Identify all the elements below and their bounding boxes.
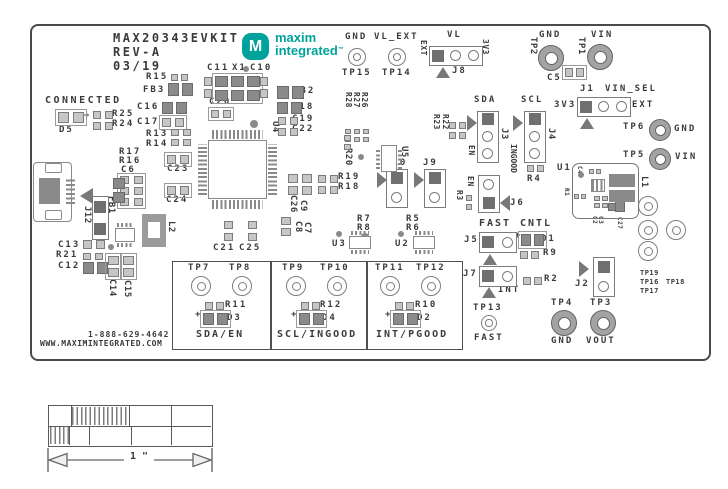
jumper-j2 (593, 257, 615, 297)
label-j6: J6 (510, 199, 525, 208)
pad-c16 (162, 102, 173, 114)
label-r18: R18 (338, 183, 360, 192)
pad-x1 (247, 76, 260, 87)
label-r21: R21 (56, 251, 78, 260)
label-j8: J8 (452, 67, 467, 76)
label-fb3: FB3 (143, 86, 165, 95)
pad-c5 (565, 68, 573, 77)
label-cntl: CNTL (520, 219, 552, 229)
label-vin-sel: VIN_SEL (605, 85, 657, 94)
label-u2: U2 (395, 240, 410, 249)
label-3v3: 3V3 (554, 101, 576, 110)
pin1-triangle-icon (414, 172, 424, 188)
label-rev-a: REV-A (113, 46, 162, 58)
pad-r23-r22 (449, 132, 456, 139)
label-u1: U1 (557, 164, 572, 173)
label-tp3: TP3 (590, 299, 612, 308)
jumper-pin-j3 (482, 131, 493, 142)
pad-r19-r18 (330, 186, 338, 194)
pad-r25-r24 (105, 122, 113, 130)
label-connected: CONNECTED (45, 96, 122, 106)
pad-c25 (248, 221, 257, 229)
label-r27: R27 (352, 92, 360, 108)
label-r13: R13 (146, 130, 168, 139)
label-c21: C21 (213, 244, 235, 253)
jumper-pin1-j3 (482, 113, 494, 125)
label-03-19: 03/19 (113, 60, 162, 72)
label-j5: J5 (464, 236, 479, 245)
label-j7: J7 (463, 270, 478, 279)
label-r23: R23 (432, 114, 440, 130)
pad-r3 (466, 195, 472, 201)
label-r28: R28 (344, 92, 352, 108)
usb-shell-pad (45, 210, 62, 220)
pin1-triangle-icon (377, 172, 387, 188)
pin1-triangle-icon (579, 261, 589, 277)
ruler-hatch-cell (72, 407, 129, 425)
pad-d5 (58, 112, 69, 123)
pad-c26-c9 (302, 174, 312, 183)
dimension-arrow-right (193, 454, 211, 467)
pad-r25-r24 (105, 111, 113, 119)
testpoint-hole-tp15 (353, 53, 361, 61)
testpoint-hole-tp5 (655, 154, 666, 165)
pad-c20 (211, 110, 219, 118)
pad-c21 (224, 221, 233, 229)
pad-r23-r22 (459, 122, 466, 129)
component-u4 (208, 140, 267, 199)
pad-c18 (277, 102, 288, 114)
pins-u4 (268, 144, 277, 195)
usb-shell-pad (45, 163, 62, 173)
pad-c23 (180, 155, 189, 164)
pad-c13 (96, 240, 105, 249)
testpoint-hole-tp16 (644, 226, 653, 235)
pad-c26-c9 (288, 174, 298, 183)
pad-c19-c22 (290, 117, 298, 125)
pad-fb1 (113, 178, 125, 189)
pins-u5 (376, 148, 380, 169)
pad-x1 (215, 76, 228, 87)
jumper-pin1-j9 (429, 172, 441, 184)
pin1-triangle-icon (513, 115, 523, 131)
pad-c13 (83, 240, 92, 249)
testpoint-hole-tp1 (594, 51, 607, 64)
label-r4: R4 (527, 175, 542, 184)
pin1-triangle-icon (483, 254, 497, 265)
label-tp16: TP16 (640, 279, 659, 286)
label-tp1: TP1 (576, 37, 585, 55)
pins-u5 (398, 148, 402, 169)
component-u5 (381, 145, 397, 172)
label-vl-ext: VL_EXT (374, 33, 419, 42)
label-j4: J4 (546, 128, 555, 140)
jumper-pin1-j12 (94, 223, 106, 235)
pad-c12 (83, 262, 94, 274)
jumper-pin-j9 (429, 192, 440, 203)
jumper-pin1-j6 (483, 197, 495, 209)
pins-u3 (351, 250, 369, 254)
label-c12: C12 (58, 262, 80, 271)
label-tp13: TP13 (473, 304, 503, 313)
label-r22: R22 (441, 114, 449, 130)
jumper-j8 (429, 46, 483, 66)
label-en: EN (467, 145, 475, 156)
pad-r26-r27-r28 (345, 129, 351, 134)
dimension-label: 1 " (124, 450, 154, 464)
via-dot (250, 120, 258, 128)
pins-u4 (198, 144, 207, 195)
pad-x1 (231, 90, 244, 101)
usb-shell (39, 178, 60, 204)
maxim-logo-icon: M (242, 33, 269, 60)
jumper-pin-j10 (391, 192, 402, 203)
via-dot (398, 231, 404, 237)
label-j9: J9 (423, 159, 438, 168)
pad-r25-r24 (93, 111, 101, 119)
label-ingood: INGOOD (509, 144, 517, 173)
pad-c19-c22 (278, 117, 286, 125)
pin1-triangle-icon (80, 188, 93, 204)
pad-r15 (181, 74, 188, 81)
label-r25: R25 (112, 110, 134, 119)
pad-c10 (260, 89, 268, 98)
pad-c11 (204, 77, 212, 86)
label-1-888-629-4642: 1-888-629-4642 (88, 331, 169, 339)
label-d5: D5 (59, 126, 74, 135)
label-max20343evkit: MAX20343EVKIT (113, 32, 239, 44)
pad-fb2 (277, 86, 289, 99)
label-c25: C25 (239, 244, 261, 253)
label-r14: R14 (146, 140, 168, 149)
pad-r4 (527, 165, 534, 172)
label-r1: R1 (563, 188, 569, 196)
jumper-pin-j4 (529, 131, 540, 142)
pad-r20 (344, 144, 351, 150)
label-c14: C14 (107, 279, 116, 297)
label-c5: C5 (547, 74, 562, 83)
pad-c24 (180, 186, 189, 195)
box-divider (270, 261, 272, 350)
pad-c21 (224, 233, 233, 241)
scale-ruler (48, 405, 213, 447)
jumper-pin-j4 (529, 148, 540, 159)
label-ext: EXT (632, 101, 654, 110)
jumper-pin-j7 (502, 271, 513, 282)
pad-fb2 (292, 86, 304, 99)
pad-r23-r22 (459, 132, 466, 139)
label-fast: FAST (479, 219, 511, 229)
pad-c11 (204, 89, 212, 98)
jumper-pin-j1 (616, 101, 627, 112)
label-www-maximintegrated-com: WWW.MAXIMINTEGRATED.COM (40, 340, 162, 348)
pins-u6 (117, 223, 133, 227)
pad-r26-r27-r28 (354, 129, 360, 134)
label-gnd: GND (345, 33, 367, 42)
jumper-j6 (478, 175, 500, 213)
pins-u4 (212, 130, 263, 139)
label-c9: C9 (298, 200, 307, 212)
label-sda: SDA (474, 96, 496, 105)
label-tp4: TP4 (551, 299, 573, 308)
label-r19: R19 (338, 173, 360, 182)
box-divider (366, 261, 368, 350)
pad-c26-c9 (302, 186, 312, 195)
label-en: EN (466, 176, 474, 187)
jumper-j3 (477, 111, 499, 163)
label-tp18: TP18 (666, 279, 685, 286)
pad-r19-r18 (330, 175, 338, 183)
jumper-pin-j6 (483, 179, 494, 190)
pad-c6 (134, 187, 143, 195)
pad-c17 (162, 118, 171, 127)
pad-r15 (171, 74, 178, 81)
label-j2: J2 (575, 280, 590, 289)
component-u6 (115, 228, 135, 242)
testpoint-hole-tp17 (644, 247, 653, 256)
testpoint-hole-tp3 (597, 317, 610, 330)
jumper-pin-j8 (450, 50, 461, 61)
label-gnd: GND (674, 125, 696, 134)
label-tp15: TP15 (342, 69, 372, 78)
pin1-triangle-icon (580, 118, 594, 129)
pad-r13-r14 (171, 139, 179, 146)
label-vin: VIN (675, 153, 697, 162)
jumper-pin-j2 (598, 281, 609, 292)
label-c16: C16 (137, 103, 159, 112)
pad-r9 (520, 251, 528, 259)
pins-u2 (415, 250, 433, 254)
jumper-j5 (479, 232, 517, 253)
label-ext: EXT (419, 40, 427, 56)
via-dot (358, 154, 364, 160)
jumper-pin1-j1 (580, 101, 592, 113)
label-r2: R2 (544, 275, 559, 284)
pad-r2 (523, 277, 531, 285)
jumper-pin1-j2 (598, 261, 610, 273)
label-r20: R20 (343, 148, 352, 166)
l2-core (148, 222, 160, 238)
pad-r26-r27-r28 (363, 129, 369, 134)
label-c11: C11 (207, 64, 229, 73)
testpoint-hole-tp14 (393, 53, 401, 61)
pin1-triangle-icon (467, 115, 477, 131)
pad-c19-c22 (278, 128, 286, 136)
label-r3: R3 (455, 190, 463, 201)
label-vl: VL (447, 31, 462, 40)
component-u2 (413, 236, 435, 249)
label-c13: C13 (58, 241, 80, 250)
pad-r26-r27-r28 (363, 137, 369, 142)
pad-c10 (260, 77, 268, 86)
pad-c23 (167, 155, 176, 164)
jumper-j10 (386, 169, 408, 208)
jumper-j1 (577, 97, 631, 117)
label-u3: U3 (332, 240, 347, 249)
pin1-triangle-icon (482, 287, 496, 298)
label-c8: C8 (293, 221, 302, 233)
pad-r13-r14 (183, 139, 191, 146)
pad-c14 (108, 268, 119, 277)
pad-c19-c22 (290, 128, 298, 136)
via-dot (336, 231, 342, 237)
pad-c16 (176, 102, 187, 114)
pad-c15 (123, 268, 134, 277)
dimension-arrow-left (49, 454, 67, 467)
pad-r19-r18 (318, 186, 326, 194)
pcb-assembly-drawing: M maxim integrated™ 1 " MAX20343EVKITREV… (0, 0, 728, 489)
pin1-triangle-icon (500, 195, 510, 211)
label-fast: FAST (474, 334, 504, 343)
label-tp2: TP2 (528, 37, 537, 55)
label-j12: J12 (82, 206, 91, 224)
label-tp19: TP19 (640, 270, 659, 277)
jumper-pin-j5 (502, 237, 513, 248)
label-c10: C10 (250, 64, 272, 73)
testpoint-hole-tp4 (558, 317, 571, 330)
pad-r21 (95, 253, 103, 260)
pad-c6 (134, 198, 143, 206)
label-j3: J3 (499, 128, 508, 140)
label-r15: R15 (146, 73, 168, 82)
pad-r25-r24 (93, 122, 101, 130)
label-tp17: TP17 (640, 288, 659, 295)
pad-c6 (134, 176, 143, 184)
pad-c17 (175, 118, 184, 127)
testpoint-hole-tp2 (545, 52, 558, 65)
pad-r9 (531, 251, 539, 259)
label-vout: VOUT (586, 337, 616, 346)
jumper-pin-j3 (482, 148, 493, 159)
pins-u6 (117, 243, 133, 247)
pad-fb3 (168, 83, 179, 96)
pad-c5 (576, 68, 584, 77)
label-c17: C17 (137, 118, 159, 127)
pad-c18 (291, 102, 302, 114)
jumper-pin1-j5 (482, 236, 494, 248)
label-vin: VIN (591, 31, 613, 40)
pad-c24 (167, 186, 176, 195)
pad-c14 (108, 256, 119, 265)
u1-outline (572, 163, 639, 219)
testpoint-hole-tp6 (655, 125, 666, 136)
jumper-j9 (424, 169, 446, 208)
pad-r21 (83, 253, 91, 260)
pad-r26-r27-r28 (354, 137, 360, 142)
jumper-pin1-j12 (94, 201, 106, 213)
jumper-pin1-j7 (482, 270, 494, 282)
label-c7: C7 (302, 222, 311, 234)
label-tp14: TP14 (382, 69, 412, 78)
pad-r13-r14 (183, 129, 191, 136)
label-gnd: GND (551, 337, 573, 346)
testpoint-hole-tp18 (672, 226, 681, 235)
pad-fb3 (182, 83, 193, 96)
label-r24: R24 (112, 120, 134, 129)
label-r9: R9 (543, 249, 558, 258)
jumper-j12 (92, 196, 109, 240)
pad-r2 (534, 277, 542, 285)
label-gnd: GND (539, 31, 561, 40)
pad-c25 (248, 233, 257, 241)
label-j1: J1 (580, 85, 595, 94)
jumper-pin1-j10 (391, 172, 403, 184)
pad-c8-c7 (281, 217, 291, 225)
label-int: INT (498, 286, 520, 295)
pad-c15 (123, 256, 134, 265)
jumper-j4 (524, 111, 546, 163)
pad-r19-r18 (318, 175, 326, 183)
logo-word-integrated: integrated™ (275, 44, 344, 57)
pad-c8-c7 (281, 228, 291, 236)
testpoint-hole-tp13 (485, 319, 492, 326)
ruler-hatch-cell (50, 427, 69, 444)
jumper-pin1-j8 (432, 50, 444, 62)
pin1-triangle-icon (436, 67, 450, 78)
jumper-pin1-j4 (529, 113, 541, 125)
label-c15: C15 (122, 280, 131, 298)
pad-r3 (466, 204, 472, 210)
via-dot (108, 244, 114, 250)
pad-r23-r22 (449, 122, 456, 129)
pad-c20 (223, 110, 231, 118)
label-scl: SCL (521, 96, 543, 105)
pad-c26-c9 (288, 186, 298, 195)
pins-u2 (415, 231, 433, 235)
signal-test-box (172, 261, 463, 350)
pad-r4 (537, 165, 544, 172)
pad-d1 (521, 234, 531, 246)
pad-x1 (247, 90, 260, 101)
component-u3 (349, 236, 371, 249)
pins-u3 (351, 231, 369, 235)
label-r26: R26 (360, 92, 368, 108)
pins-u4 (212, 200, 263, 209)
label-tp6: TP6 (623, 123, 645, 132)
pad-d1 (534, 234, 544, 246)
trademark-symbol: ™ (338, 47, 344, 53)
label-l1: L1 (639, 176, 648, 188)
pad-x1 (215, 90, 228, 101)
label-c26: C26 (288, 195, 297, 213)
jumper-j7 (479, 266, 517, 287)
usb-pins (66, 177, 75, 204)
pad-r13-r14 (171, 129, 179, 136)
pad-d5 (73, 112, 84, 123)
pad-x1 (231, 76, 244, 87)
pad-fb1 (113, 192, 125, 203)
label-l2: L2 (166, 221, 175, 233)
label-tp5: TP5 (623, 151, 645, 160)
via-dot (243, 66, 249, 72)
testpoint-hole-tp19 (644, 202, 653, 211)
jumper-pin-j1 (598, 101, 609, 112)
jumper-pin-j8 (468, 50, 479, 61)
pad-r20 (344, 135, 351, 141)
